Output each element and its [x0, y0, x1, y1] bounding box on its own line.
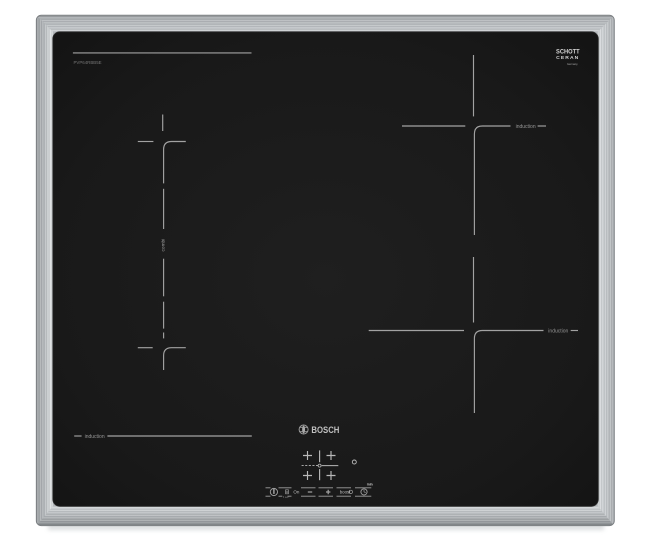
svg-text:PVP64RBB5E: PVP64RBB5E — [74, 60, 102, 65]
svg-text:CERAN: CERAN — [556, 55, 579, 60]
svg-text:boost: boost — [340, 490, 352, 495]
svg-text:3 sec.: 3 sec. — [283, 496, 290, 499]
svg-text:On: On — [293, 490, 300, 495]
svg-text:min: min — [367, 482, 373, 486]
svg-text:induction: induction — [548, 328, 568, 334]
svg-text:BOSCH: BOSCH — [311, 425, 339, 435]
svg-text:combi: combi — [160, 239, 166, 252]
svg-text:induction: induction — [516, 124, 536, 130]
svg-text:induction: induction — [85, 434, 105, 440]
svg-text:Germany: Germany — [567, 62, 578, 66]
